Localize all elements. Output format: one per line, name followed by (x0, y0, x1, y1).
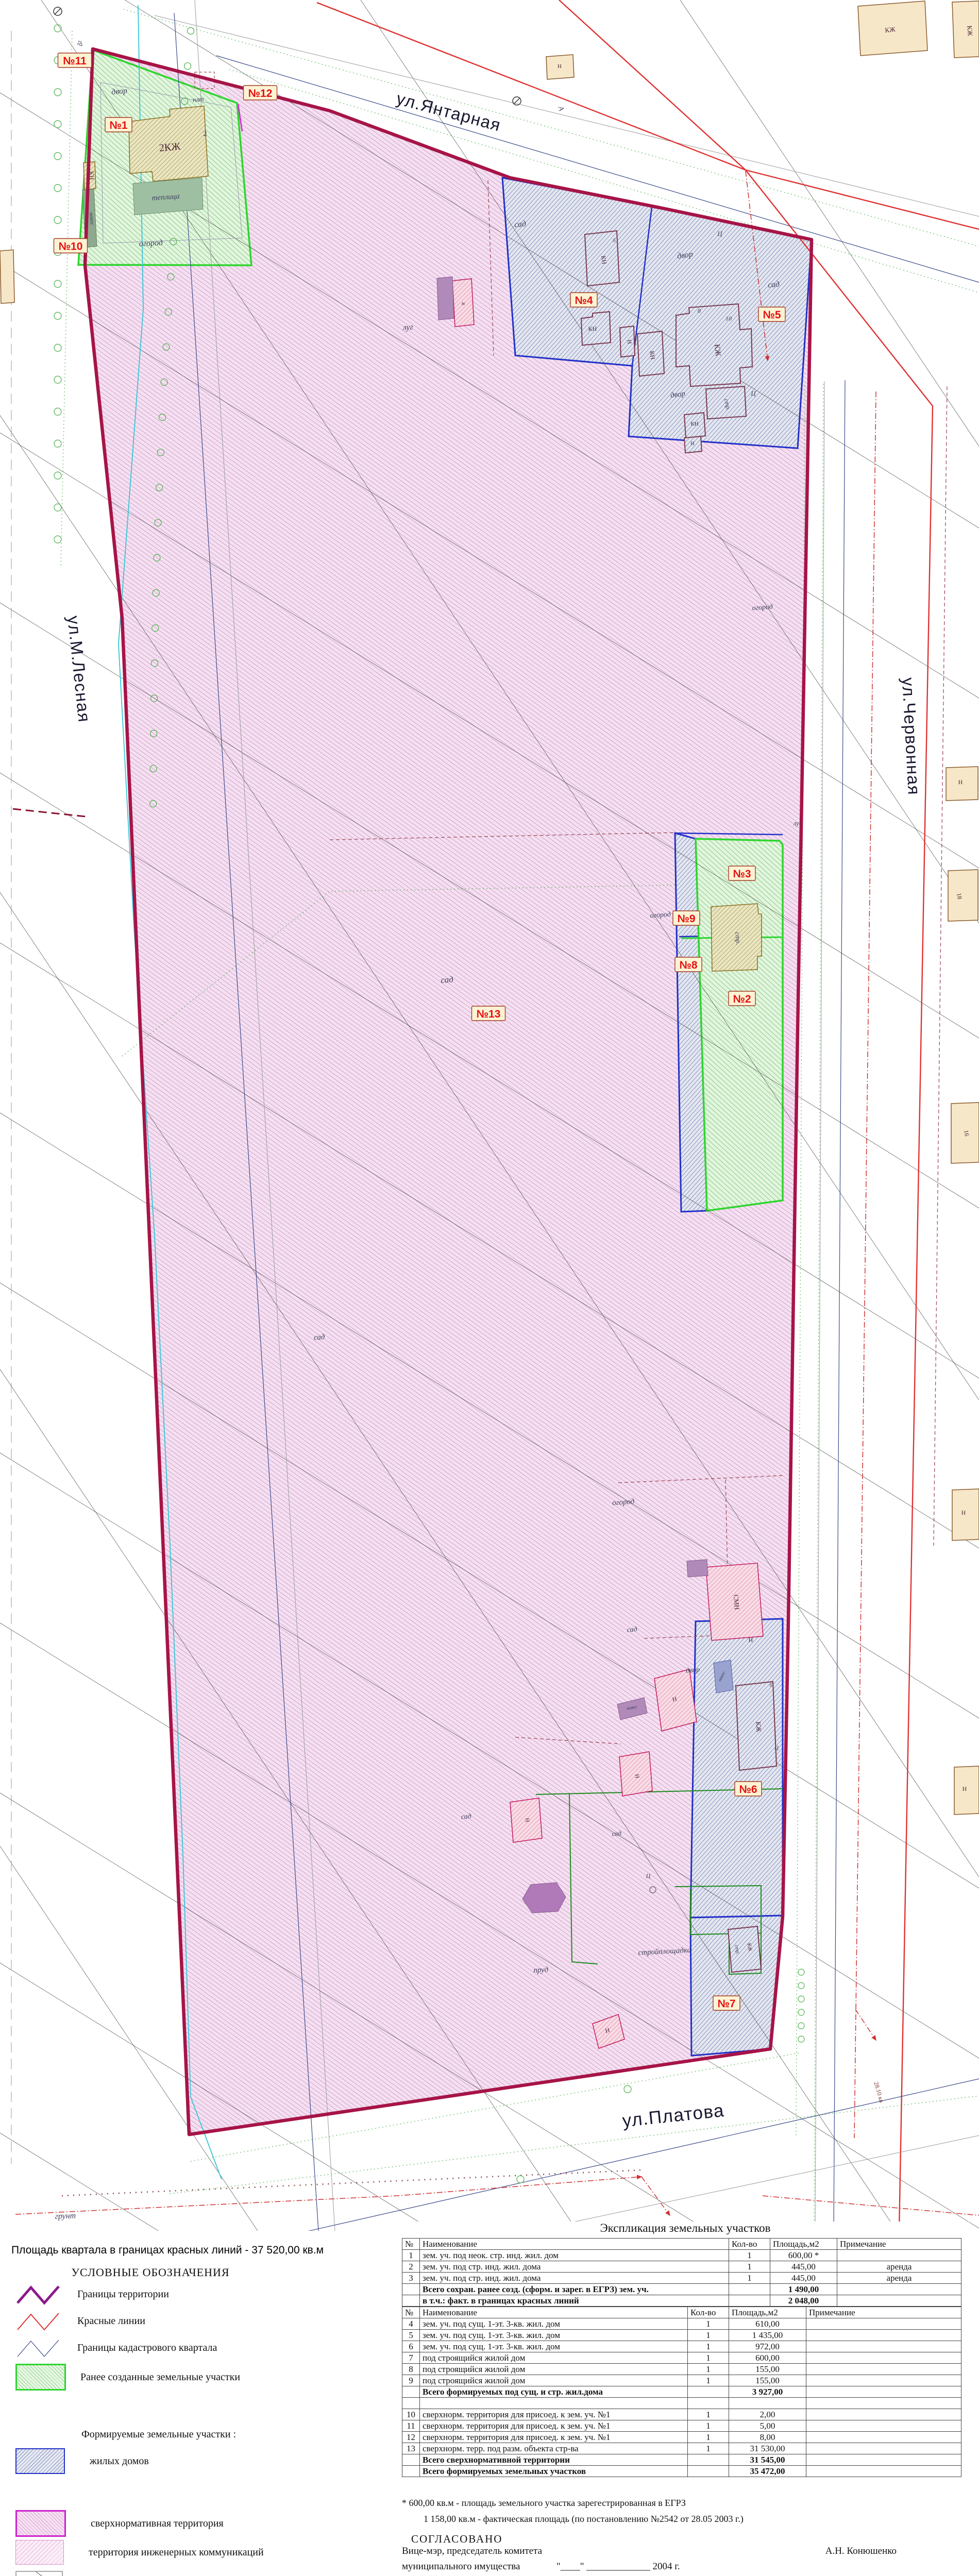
table-cell (806, 2420, 961, 2432)
plot-badge-№10: №10 (54, 239, 88, 253)
tree-symbol (54, 536, 61, 543)
legend-panel: Площадь квартала в границах красных лини… (11, 2244, 372, 2576)
table-cell: 1 (688, 2364, 729, 2375)
legend-item-label: Границы кадастрового квартала (77, 2342, 217, 2354)
table-cell: под строящийся жилой дом (420, 2352, 688, 2364)
legend-item-label: сверхнормативная территория (91, 2518, 224, 2530)
map-label: сад (461, 1812, 471, 1821)
table-cell: аренда (837, 2273, 961, 2284)
map-label: КН (88, 171, 95, 180)
legend-swatch-rect-magenta (15, 2510, 66, 2537)
plot-6 (690, 1619, 783, 1918)
table-cell: 31 530,00 (729, 2443, 806, 2454)
table-cell: Всего сверхнормативной территории (420, 2454, 688, 2466)
map-label: огород (752, 603, 773, 613)
table-cell: сверхнорм. территория для присоед. к зем… (420, 2420, 688, 2432)
map-label: 18 (955, 892, 964, 900)
table-cell (806, 2352, 961, 2364)
table-cell: 1 490,00 (770, 2284, 837, 2295)
legend-swatch-rect-green (15, 2364, 66, 2391)
tree-symbol (54, 408, 61, 415)
table-cell: 1 (688, 2420, 729, 2432)
approval-role: Вице-мэр, председатель комитета (402, 2546, 542, 2557)
approval-name: А.Н. Конюшенко (825, 2546, 897, 2557)
map-label: КН (600, 255, 608, 265)
map-label: н (462, 300, 465, 307)
map-label: сад (441, 974, 454, 985)
table-cell: 3 927,00 (729, 2386, 806, 2398)
badge-label: №13 (477, 1008, 501, 1020)
table-cell (729, 2284, 770, 2295)
map-label: Н (524, 1818, 531, 1822)
quarter-area-note: Площадь квартала в границах красных лини… (11, 2244, 372, 2257)
tree-symbol (54, 376, 61, 383)
table-cell (402, 2295, 420, 2307)
map-label: двор (686, 1666, 700, 1675)
table-row: 1зем. уч. под неок. стр. инд. жил. дом16… (402, 2250, 961, 2261)
map-label: Н (626, 340, 632, 345)
tree-symbol (54, 216, 61, 224)
table-cell: под строящийся жилой дом (420, 2375, 688, 2386)
table-cell: зем. уч. под сущ. 1-эт. 3-кв. жил. дом (420, 2341, 688, 2352)
table-cell: 12 (402, 2432, 420, 2443)
map-label: Н (690, 441, 694, 447)
table-cell (806, 2364, 961, 2375)
map-label: 28.10 кв (872, 2081, 885, 2104)
plot-badge-№7: №7 (713, 1996, 740, 2010)
badge-label: №9 (677, 913, 695, 925)
table-cell: 1 (688, 2330, 729, 2341)
legend-swatch-zigzag-navy (15, 2336, 63, 2360)
map-label: КЖ (713, 344, 722, 357)
plot-badge-№9: №9 (673, 911, 700, 925)
table-header-row: №НаименованиеКол-воПлощадь,м2Примечание (402, 2239, 961, 2250)
table-cell: зем. уч. под сущ. 1-эт. 3-кв. жил. дом (420, 2330, 688, 2341)
tree-symbol (798, 2036, 804, 2042)
map-label: Н (558, 63, 562, 70)
table-cell (806, 2386, 961, 2398)
table-cell: зем. уч. под сущ. 1-эт. 3-кв. жил. дом (420, 2318, 688, 2330)
table-cell: 1 (688, 2341, 729, 2352)
bldg-str7 (728, 1926, 761, 1972)
table-row: 9под строящийся жилой дом1155,00 (402, 2375, 961, 2386)
table-row: 13сверхнорм. терр. под разм. объекта стр… (402, 2443, 961, 2454)
tree-symbol (54, 344, 61, 351)
footnote-2: 1 158,00 кв.м - фактическая площадь (по … (402, 2514, 969, 2524)
table-cell: 5,00 (729, 2420, 806, 2432)
map-label: Н (633, 1774, 640, 1779)
table-cell: 445,00 (770, 2273, 837, 2284)
table-cell (806, 2375, 961, 2386)
table-cell: 35 472,00 (729, 2466, 806, 2477)
table-cell: 1 (688, 2352, 729, 2364)
table-cell: 2 (402, 2261, 420, 2273)
table-cell (806, 2398, 961, 2409)
column-header: Наименование (420, 2307, 688, 2318)
table-cell: зем. уч. под стр. инд. жил. дома (420, 2261, 729, 2273)
table-cell: Всего формируемых земельных участков (420, 2466, 688, 2477)
map-label: СМН (732, 1594, 741, 1610)
street-name: ул.Янтарная (394, 89, 503, 135)
table-row: 6зем. уч. под сущ. 1-эт. 3-кв. жил. дом1… (402, 2341, 961, 2352)
tree-symbol (54, 504, 61, 511)
plot-badge-№12: №12 (244, 86, 277, 100)
map-label: луг (402, 323, 413, 332)
table-row: 2зем. уч. под стр. инд. жил. дома1445,00… (402, 2261, 961, 2273)
tree-symbol (188, 28, 194, 35)
table-cell: 600,00 * (770, 2250, 837, 2261)
plot-badge-№3: №3 (729, 866, 755, 880)
table-cell: 2 048,00 (770, 2295, 837, 2307)
table-cell: 4 (402, 2318, 420, 2330)
badge-label: №5 (763, 309, 781, 321)
table-cell: под строящийся жилой дом (420, 2364, 688, 2375)
table-cell (729, 2295, 770, 2307)
table-cell: 1 (402, 2250, 420, 2261)
table-cell: 600,00 (729, 2352, 806, 2364)
map-label: Ц (774, 1745, 779, 1751)
table-cell: 11 (402, 2420, 420, 2432)
table-cell: Всего сохран. ранее созд. (сформ. и заре… (420, 2284, 729, 2295)
map-label: Н (749, 1636, 753, 1643)
table-cell: в т.ч.: факт. в границах красных линий (420, 2295, 729, 2307)
table-cell (837, 2284, 961, 2295)
map-label: 10 (725, 315, 732, 322)
table-cell: 7 (402, 2352, 420, 2364)
table-cell: сверхнорм. территория для присоед. к зем… (420, 2432, 688, 2443)
map-label: Ц (750, 389, 756, 397)
footnotes: * 600,00 кв.м - площадь земельного участ… (402, 2498, 969, 2524)
parcels-2-3 (696, 839, 783, 1211)
tree-symbol (54, 312, 61, 319)
map-label: КЖ (754, 1721, 763, 1733)
table-cell: 8,00 (729, 2432, 806, 2443)
map-label: 2 (204, 130, 207, 138)
plot-badge-№6: №6 (735, 1782, 762, 1796)
table-cell (806, 2454, 961, 2466)
map-label: 2КЖ (159, 141, 181, 154)
table-cell (688, 2454, 729, 2466)
plot-badge-№1: №1 (105, 117, 132, 132)
tree-symbol (54, 440, 61, 447)
noise-line (0, 2133, 979, 2231)
map-label: грунт (55, 2211, 76, 2221)
badge-label: №2 (733, 993, 751, 1005)
survey-map: №1№2№3№4№5№6№7№8№9№10№11№12№13 дворплтте… (0, 0, 979, 2231)
map-label: б (613, 238, 616, 244)
tree-symbol (184, 63, 191, 70)
table-cell: 1 (688, 2409, 729, 2420)
map-label: КН (690, 421, 698, 427)
map-label: сад (612, 1829, 622, 1837)
column-header: Примечание (837, 2239, 961, 2250)
table-cell: 445,00 (770, 2261, 837, 2273)
table-cell (806, 2432, 961, 2443)
plot-badge-№4: №4 (570, 293, 597, 307)
table-cell: 972,00 (729, 2341, 806, 2352)
map-label: луг (792, 819, 802, 827)
map-label: огород (612, 1497, 635, 1507)
badge-label: №6 (739, 1784, 757, 1795)
map-label: КН (588, 325, 597, 332)
legend-item: территория инженерных коммуникаций (15, 2540, 264, 2565)
tree-symbol (54, 89, 61, 96)
badge-label: №8 (679, 959, 697, 971)
map-label: сад (514, 219, 527, 229)
tree-symbol (54, 280, 61, 287)
map-label: КЖ (966, 25, 974, 37)
table-cell: 1 (688, 2318, 729, 2330)
table-cell (806, 2466, 961, 2477)
street-name: ул.Червонная (899, 677, 924, 796)
street-house (952, 1, 979, 58)
street-house (0, 250, 14, 303)
table-cell (806, 2341, 961, 2352)
table-cell (402, 2284, 420, 2295)
explication-table: №НаименованиеКол-воПлощадь,м2Примечание1… (402, 2238, 961, 2307)
table-cell: 1 (688, 2443, 729, 2454)
tree-symbol (54, 184, 61, 192)
table-cell (688, 2466, 729, 2477)
plot-badge-№5: №5 (758, 307, 785, 321)
table-cell: 10 (402, 2409, 420, 2420)
approval-block: СОГЛАСОВАНОВице-мэр, председатель комите… (402, 2533, 976, 2576)
explication-table: №НаименованиеКол-воПлощадь,м2Примечание4… (402, 2307, 961, 2477)
map-label: двор (111, 87, 128, 97)
tree-symbol (798, 1996, 804, 2002)
column-header: Кол-во (688, 2307, 729, 2318)
approval-role2: муниципального имущества (402, 2561, 520, 2572)
map-label: стр. (734, 932, 742, 945)
explication-panel: Экспликация земельных участков №Наименов… (402, 2222, 969, 2477)
map-label: Ц (646, 1872, 651, 1879)
table-row: 11сверхнорм. территория для присоед. к з… (402, 2420, 961, 2432)
table-row: 10сверхнорм. территория для присоед. к з… (402, 2409, 961, 2420)
street-name: ул.Платова (621, 2100, 725, 2131)
legend-item: Красные линии (15, 2309, 145, 2333)
legend-swatch-zigzag-red (15, 2309, 63, 2333)
map-label: сад (314, 1333, 326, 1342)
table-cell (837, 2250, 961, 2261)
badge-label: №11 (63, 55, 87, 67)
table-cell: 5 (402, 2330, 420, 2341)
tree-symbol (54, 472, 61, 479)
legend-item: сверхнормативная территория (15, 2510, 224, 2537)
column-header: Площадь,м2 (729, 2307, 806, 2318)
table-cell (402, 2454, 420, 2466)
map-label: плт (192, 95, 204, 104)
map-label: сад (627, 1625, 637, 1634)
badge-label: №1 (109, 120, 127, 131)
legend-swatch-zigzag-purple (15, 2282, 63, 2306)
map-label: 16 (963, 1129, 971, 1137)
table-cell: 155,00 (729, 2375, 806, 2386)
column-header: № (402, 2307, 420, 2318)
table-cell: 6 (402, 2341, 420, 2352)
map-label: огород (139, 239, 163, 248)
table-row: Всего сверхнормативной территории31 545,… (402, 2454, 961, 2466)
legend-item: жилых домов (15, 2448, 149, 2474)
column-header: Площадь,м2 (770, 2239, 837, 2250)
table-cell: сверхнорм. территория для присоед. к зем… (420, 2409, 688, 2420)
table-row: 3зем. уч. под стр. инд. жил. дома1445,00… (402, 2273, 961, 2284)
legend-item-label: территория инженерных коммуникаций (89, 2547, 264, 2558)
tree-symbol (798, 1982, 804, 1989)
table-cell (837, 2295, 961, 2307)
map-label: Ц (717, 230, 722, 238)
legend-item: Границы кадастрового квартала (15, 2336, 217, 2360)
approval-stamp: СОГЛАСОВАНО (402, 2533, 976, 2546)
legend-item-label: Красные линии (77, 2315, 145, 2327)
table-cell (688, 2398, 729, 2409)
column-header: № (402, 2239, 420, 2250)
table-cell: 2,00 (729, 2409, 806, 2420)
table-row: в т.ч.: факт. в границах красных линий2 … (402, 2295, 961, 2307)
footnote-1: * 600,00 кв.м - площадь земельного участ… (402, 2498, 969, 2509)
map-label: гр (77, 39, 86, 47)
map-label: пруд (533, 1965, 549, 1975)
table-cell (729, 2398, 806, 2409)
map-label: Н (958, 778, 963, 786)
plot-badge-№11: №11 (58, 53, 92, 67)
explication-title: Экспликация земельных участков (402, 2222, 969, 2235)
table-cell: сверхнорм. терр. под разм. объекта стр-в… (420, 2443, 688, 2454)
badge-label: №3 (733, 868, 751, 880)
table-row: 5зем. уч. под сущ. 1-эт. 3-кв. жил. дом1… (402, 2330, 961, 2341)
badge-label: №7 (717, 1998, 735, 2010)
explication-tables: №НаименованиеКол-воПлощадь,м2Примечание1… (402, 2238, 969, 2477)
badge-label: №12 (248, 88, 273, 99)
table-row: Всего сохран. ранее созд. (сформ. и заре… (402, 2284, 961, 2295)
tree-symbol (54, 152, 61, 160)
map-label: Н (961, 1509, 966, 1516)
legend-item-label: Границы территории (77, 2289, 169, 2300)
table-cell: зем. уч. под неок. стр. инд. жил. дом (420, 2250, 729, 2261)
table-cell: зем. уч. под стр. инд. жил. дома (420, 2273, 729, 2284)
table-cell: 1 (729, 2261, 770, 2273)
map-label: сад (768, 280, 780, 290)
tree-symbol (798, 2009, 804, 2015)
legend-item: Шумовая зона аэродрома (15, 2571, 198, 2576)
tree-symbol (54, 121, 61, 128)
badge-label: №10 (59, 241, 83, 252)
table-cell: 31 545,00 (729, 2454, 806, 2466)
legend-item-label: Ранее созданные земельные участки (80, 2371, 240, 2383)
legend-title: УСЛОВНЫЕ ОБОЗНАЧЕНИЯ (11, 2266, 290, 2279)
map-label: А (556, 105, 565, 112)
table-cell: аренда (837, 2261, 961, 2273)
cadastral-plan-page: №1№2№3№4№5№6№7№8№9№10№11№12№13 дворплтте… (0, 0, 979, 2576)
table-cell: 155,00 (729, 2364, 806, 2375)
street-name: ул.М.Лесная (64, 615, 94, 723)
column-header: Кол-во (729, 2239, 770, 2250)
table-row: 12сверхнорм. территория для присоед. к з… (402, 2432, 961, 2443)
table-cell (420, 2398, 688, 2409)
table-cell (402, 2398, 420, 2409)
table-row: Всего формируемых земельных участков35 4… (402, 2466, 961, 2477)
map-label: 8 (698, 307, 701, 314)
table-cell: Всего формируемых под сущ. и стр. жил.до… (420, 2386, 688, 2398)
map-label: Н (963, 1785, 967, 1792)
map-label: КЖ (885, 25, 896, 34)
table-cell (806, 2330, 961, 2341)
map-label: огород (650, 911, 671, 920)
legend-swatch-rect-noise (15, 2571, 63, 2576)
table-cell: 1 (729, 2250, 770, 2261)
table-cell: 13 (402, 2443, 420, 2454)
legend-swatch-rect-blue (15, 2448, 65, 2474)
table-cell (806, 2443, 961, 2454)
tree-symbol (798, 1969, 804, 1975)
table-cell (806, 2318, 961, 2330)
table-cell: 1 (729, 2273, 770, 2284)
badge-label: №4 (575, 295, 593, 307)
map-label: навес (88, 212, 95, 226)
table-header-row: №НаименованиеКол-воПлощадь,м2Примечание (402, 2307, 961, 2318)
table-cell: 9 (402, 2375, 420, 2386)
table-cell: 1 (688, 2375, 729, 2386)
table-cell: 1 435,00 (729, 2330, 806, 2341)
tree-symbol (798, 2023, 804, 2029)
legend-item: Ранее созданные земельные участки (15, 2364, 240, 2391)
column-header: Наименование (420, 2239, 729, 2250)
plot-badge-№13: №13 (472, 1006, 505, 1021)
table-cell (806, 2409, 961, 2420)
legend-swatch-rect-lightpink (15, 2540, 64, 2565)
table-row (402, 2398, 961, 2409)
bldg-purp (437, 277, 454, 320)
table-cell (688, 2386, 729, 2398)
legend-item-label: жилых домов (90, 2455, 149, 2467)
legend-formed-title: Формируемые земельные участки : (15, 2429, 236, 2441)
table-row: 7под строящийся жилой дом1600,00 (402, 2352, 961, 2364)
table-row: 8под строящийся жилой дом1155,00 (402, 2364, 961, 2375)
legend-item: Границы территории (15, 2282, 169, 2306)
table-row: 4зем. уч. под сущ. 1-эт. 3-кв. жил. дом1… (402, 2318, 961, 2330)
table-row: Всего формируемых под сущ. и стр. жил.до… (402, 2386, 961, 2398)
table-cell (402, 2466, 420, 2477)
plot-badge-№2: №2 (729, 991, 755, 1006)
map-label: КН (648, 350, 656, 360)
table-cell (402, 2386, 420, 2398)
table-cell: 1 (688, 2432, 729, 2443)
column-header: Примечание (806, 2307, 961, 2318)
approval-date-line: "____" _____________ 2004 г. (556, 2561, 680, 2572)
table-cell: 610,00 (729, 2318, 806, 2330)
bldg-purp (687, 1560, 708, 1577)
table-cell: 8 (402, 2364, 420, 2375)
table-cell: 3 (402, 2273, 420, 2284)
plot-badge-№8: №8 (675, 957, 702, 972)
